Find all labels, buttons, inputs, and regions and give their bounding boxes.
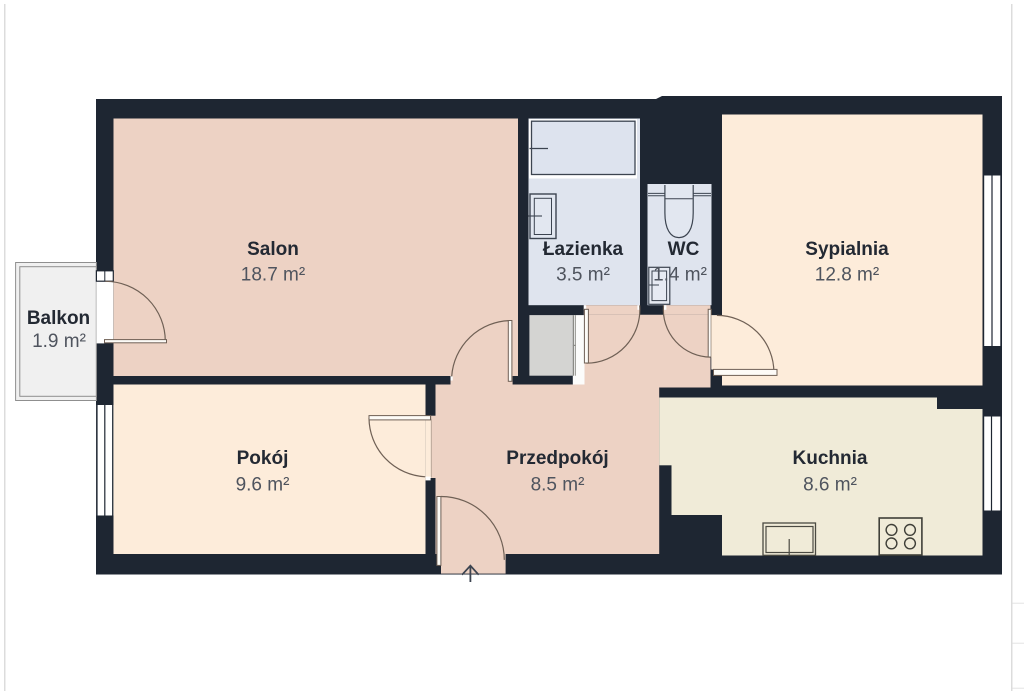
svg-text:Łazienka: Łazienka [543,239,624,260]
svg-text:12.8 m²: 12.8 m² [815,265,879,286]
svg-text:Balkon: Balkon [27,308,90,329]
svg-text:Pokój: Pokój [237,448,289,469]
svg-text:WC: WC [668,239,700,260]
svg-text:9.6 m²: 9.6 m² [236,475,290,496]
svg-text:Sypialnia: Sypialnia [805,239,889,260]
svg-text:1.4 m²: 1.4 m² [653,265,707,286]
svg-text:8.6 m²: 8.6 m² [803,475,857,496]
svg-text:Przedpokój: Przedpokój [506,448,608,469]
svg-text:3.5 m²: 3.5 m² [556,265,610,286]
svg-text:18.7 m²: 18.7 m² [241,265,305,286]
svg-text:8.5 m²: 8.5 m² [531,475,585,496]
svg-text:Kuchnia: Kuchnia [793,448,868,469]
svg-text:1.9 m²: 1.9 m² [32,331,86,352]
svg-text:Salon: Salon [247,239,299,260]
